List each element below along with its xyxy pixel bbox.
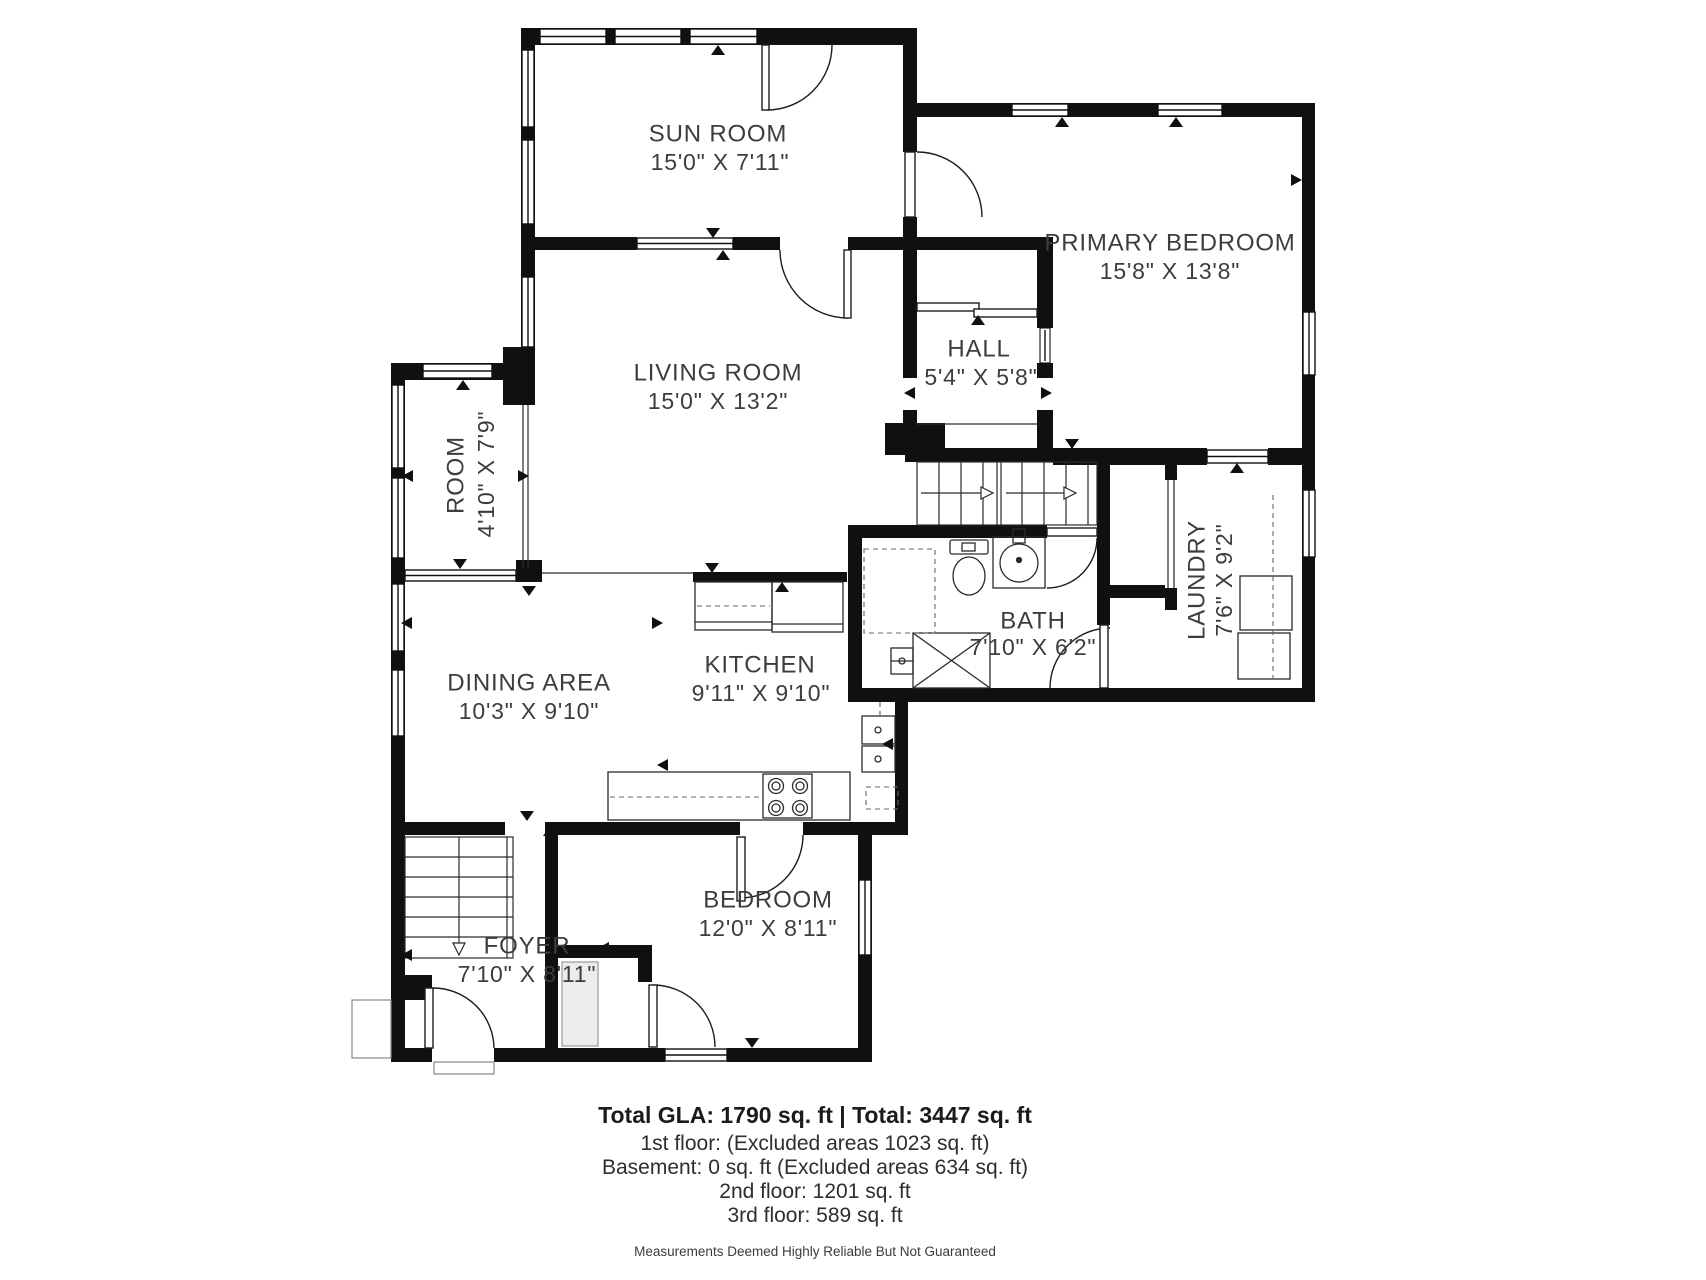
- foyer-dims: 7'10" X 8'11": [458, 961, 597, 987]
- kitchen-label: KITCHEN: [705, 652, 816, 679]
- floor-plan-drawing: SUN ROOM 15'0" X 7'11" LIVING ROOM 15'0"…: [0, 0, 1706, 1280]
- window: [522, 140, 534, 224]
- window: [392, 670, 404, 736]
- window: [522, 50, 534, 127]
- bath-label: BATH: [1000, 608, 1065, 635]
- window: [1158, 104, 1222, 116]
- hall-dims: 5'4" X 5'8": [924, 364, 1037, 390]
- window: [423, 364, 492, 378]
- window: [392, 385, 404, 468]
- entry-step: [434, 1062, 494, 1074]
- hall-label: HALL: [947, 336, 1010, 363]
- disclaimer: Measurements Deemed Highly Reliable But …: [465, 1244, 1165, 1259]
- cased-opening: [1207, 450, 1268, 463]
- window: [1303, 490, 1315, 557]
- bedroom-label: BEDROOM: [703, 887, 833, 914]
- window: [392, 478, 404, 558]
- counter-stove: [608, 772, 850, 820]
- upper-cabinets: [695, 582, 843, 632]
- living-room-dims: 15'0" X 13'2": [648, 388, 788, 414]
- window: [637, 238, 733, 249]
- room-dims: 4'10" X 7'9": [473, 411, 499, 538]
- kitchen-dims: 9'11" X 9'10": [692, 680, 831, 706]
- bedroom-dims: 12'0" X 8'11": [699, 915, 838, 941]
- dryer: [1238, 633, 1290, 679]
- window: [1012, 104, 1068, 116]
- toilet: [950, 540, 988, 595]
- total-gla: Total GLA: 1790 sq. ft | Total: 3447 sq.…: [465, 1102, 1165, 1129]
- floor-plan-page: SUN ROOM 15'0" X 7'11" LIVING ROOM 15'0"…: [0, 0, 1706, 1280]
- sliding-door: [974, 309, 1037, 317]
- bath-dims: 7'10" X 6'2": [970, 634, 1097, 660]
- second-floor-area: 2nd floor: 1201 sq. ft: [465, 1180, 1165, 1204]
- pocket-door: [1040, 328, 1050, 363]
- foyer-label: FOYER: [484, 933, 571, 960]
- primary-bedroom-dims: 15'8" X 13'8": [1100, 258, 1240, 284]
- window: [690, 29, 757, 44]
- first-floor-area: 1st floor: (Excluded areas 1023 sq. ft): [465, 1132, 1165, 1156]
- basement-area: Basement: 0 sq. ft (Excluded areas 634 s…: [465, 1156, 1165, 1180]
- window: [540, 29, 606, 44]
- third-floor-area: 3rd floor: 589 sq. ft: [465, 1204, 1165, 1228]
- window: [859, 880, 871, 955]
- pantry-drawers: [862, 702, 898, 809]
- window: [615, 29, 681, 44]
- sun-room-label: SUN ROOM: [649, 121, 787, 148]
- window: [1303, 312, 1315, 375]
- summary-footer: Total GLA: 1790 sq. ft | Total: 3447 sq.…: [465, 1102, 1165, 1259]
- laundry-label: LAUNDRY: [1184, 520, 1211, 640]
- under-stair-closet: [864, 549, 935, 633]
- primary-bedroom-label: PRIMARY BEDROOM: [1044, 230, 1295, 257]
- laundry-dims: 7'6" X 9'2": [1211, 523, 1237, 636]
- window: [392, 584, 404, 651]
- living-room-label: LIVING ROOM: [634, 360, 803, 387]
- porch-step: [352, 1000, 391, 1058]
- window: [522, 277, 534, 347]
- sliding-door: [917, 303, 979, 311]
- sun-room-dims: 15'0" X 7'11": [651, 149, 790, 175]
- cased-opening: [405, 570, 516, 581]
- dining-area-dims: 10'3" X 9'10": [459, 698, 599, 724]
- laundry-fixtures: [1238, 495, 1292, 679]
- room-label: ROOM: [443, 436, 470, 514]
- washer: [1240, 576, 1292, 630]
- window: [665, 1049, 727, 1061]
- dining-area-label: DINING AREA: [447, 670, 611, 697]
- cased-opening: [1165, 480, 1177, 588]
